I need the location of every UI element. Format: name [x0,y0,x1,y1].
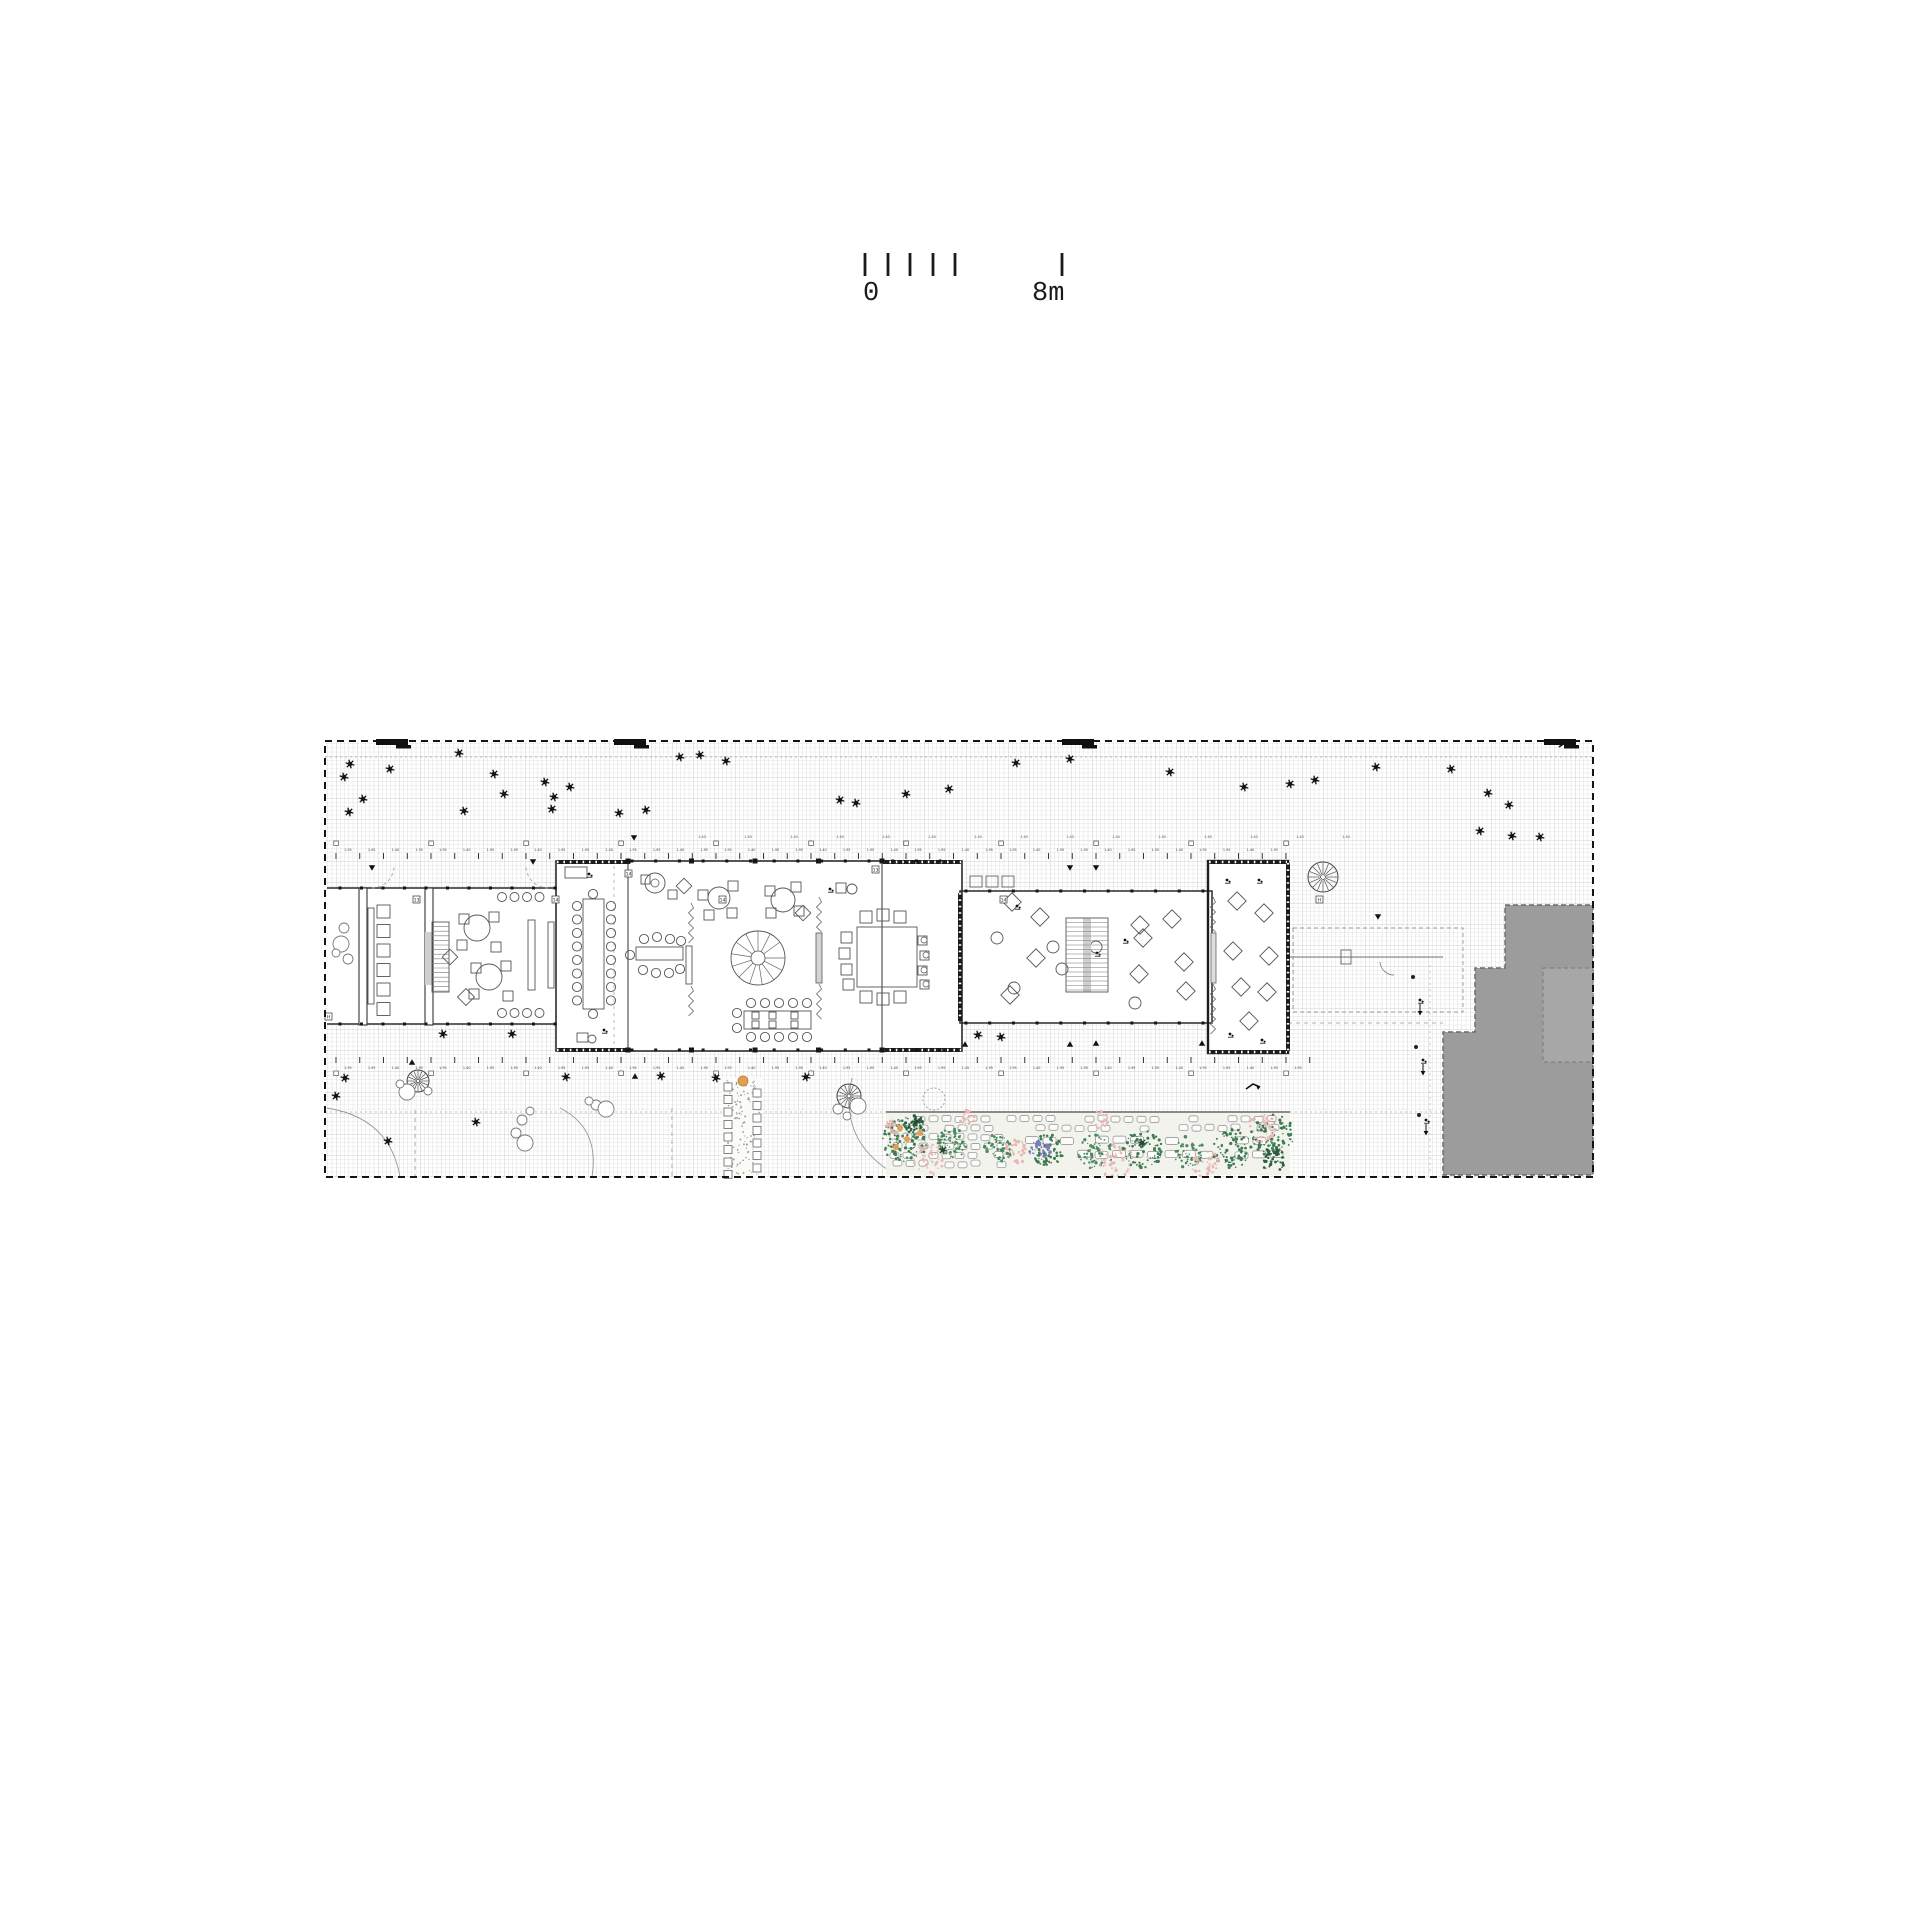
svg-text:1.40: 1.40 [890,848,898,852]
svg-text:1.40: 1.40 [962,1066,970,1070]
svg-text:1.40: 1.40 [534,1066,542,1070]
svg-text:1.40: 1.40 [463,848,471,852]
svg-text:1.95: 1.95 [653,848,661,852]
svg-text:1.95: 1.95 [700,848,708,852]
svg-text:1.95: 1.95 [368,848,376,852]
svg-text:1.40: 1.40 [1104,1066,1112,1070]
svg-text:1.95: 1.95 [558,848,566,852]
svg-text:1.40: 1.40 [962,848,970,852]
svg-text:1.95: 1.95 [938,1066,946,1070]
svg-text:1.95: 1.95 [1152,1066,1160,1070]
svg-text:1.95: 1.95 [415,848,423,852]
svg-text:H: H [1318,897,1321,903]
svg-text:1.40: 1.40 [1158,835,1166,839]
scale-end-label: 8m [1032,279,1064,309]
svg-text:1.40: 1.40 [1033,848,1041,852]
scale-zero-label: 0 [863,279,879,309]
svg-text:1.40: 1.40 [1112,835,1120,839]
svg-text:1.40: 1.40 [1247,848,1255,852]
svg-text:1.95: 1.95 [558,1066,566,1070]
svg-text:1.95: 1.95 [795,848,803,852]
svg-text:1.95: 1.95 [582,1066,590,1070]
svg-text:1.95: 1.95 [843,1066,851,1070]
svg-text:1.40: 1.40 [605,848,613,852]
svg-text:1.95: 1.95 [653,1066,661,1070]
svg-text:1.95: 1.95 [439,848,447,852]
scale-tick [864,253,867,276]
svg-text:1.95: 1.95 [985,848,993,852]
svg-text:1.95: 1.95 [1199,1066,1207,1070]
svg-text:1.95: 1.95 [1009,848,1017,852]
svg-text:1.95: 1.95 [1270,1066,1278,1070]
svg-text:1.95: 1.95 [1009,1066,1017,1070]
svg-text:1.40: 1.40 [974,835,982,839]
svg-text:1.95: 1.95 [914,1066,922,1070]
scale-tick [887,253,890,276]
svg-text:1.40: 1.40 [1342,835,1350,839]
svg-text:1.40: 1.40 [534,848,542,852]
svg-text:1.40: 1.40 [882,835,890,839]
svg-text:1.40: 1.40 [790,835,798,839]
svg-text:1.95: 1.95 [724,848,732,852]
svg-text:1.95: 1.95 [415,1066,423,1070]
svg-text:1.95: 1.95 [724,1066,732,1070]
svg-text:1.95: 1.95 [1294,1066,1302,1070]
svg-text:13: 13 [873,867,879,873]
svg-text:1.95: 1.95 [1057,848,1065,852]
stepping-path [722,1076,762,1179]
svg-text:14: 14 [720,897,726,903]
svg-text:1.40: 1.40 [463,1066,471,1070]
svg-text:1.40: 1.40 [819,1066,827,1070]
svg-text:1.95: 1.95 [1223,848,1231,852]
svg-text:1.40: 1.40 [1175,848,1183,852]
scale-tick-8m [1061,253,1064,276]
svg-text:1.95: 1.95 [795,1066,803,1070]
scale-tick [954,253,957,276]
svg-text:1.95: 1.95 [1199,848,1207,852]
svg-text:1.95: 1.95 [867,1066,875,1070]
svg-text:1.95: 1.95 [1223,1066,1231,1070]
svg-text:1.40: 1.40 [677,1066,685,1070]
svg-text:1.95: 1.95 [344,1066,352,1070]
svg-text:1.40: 1.40 [392,1066,400,1070]
svg-text:1.95: 1.95 [1152,848,1160,852]
svg-text:1.40: 1.40 [928,835,936,839]
svg-text:1.40: 1.40 [748,1066,756,1070]
svg-text:1.95: 1.95 [510,848,518,852]
scale-tick [909,253,912,276]
svg-text:1.40: 1.40 [698,835,706,839]
svg-text:1.40: 1.40 [1066,835,1074,839]
svg-text:14: 14 [626,871,632,877]
svg-text:1.40: 1.40 [890,1066,898,1070]
svg-text:1.40: 1.40 [819,848,827,852]
svg-text:1.95: 1.95 [914,848,922,852]
svg-text:1.40: 1.40 [836,835,844,839]
svg-text:1.95: 1.95 [867,848,875,852]
svg-text:1.95: 1.95 [344,848,352,852]
svg-text:14: 14 [553,897,559,903]
svg-text:1.40: 1.40 [1020,835,1028,839]
svg-text:1.95: 1.95 [985,1066,993,1070]
svg-text:1.40: 1.40 [748,848,756,852]
svg-text:1.95: 1.95 [510,1066,518,1070]
svg-text:1.40: 1.40 [744,835,752,839]
svg-text:1.40: 1.40 [1104,848,1112,852]
architectural-site-plan: 1.951.951.401.951.951.401.951.951.401.95… [0,0,1920,1920]
svg-text:1.95: 1.95 [772,1066,780,1070]
svg-text:1.40: 1.40 [1296,835,1304,839]
svg-text:1.95: 1.95 [700,1066,708,1070]
svg-text:1.40: 1.40 [1247,1066,1255,1070]
svg-text:1.95: 1.95 [487,848,495,852]
svg-text:1.95: 1.95 [938,848,946,852]
svg-text:1.40: 1.40 [1175,1066,1183,1070]
svg-text:1.95: 1.95 [1270,848,1278,852]
svg-text:1.95: 1.95 [582,848,590,852]
svg-text:1.95: 1.95 [1128,1066,1136,1070]
scale-bar: 08m [863,253,1064,309]
svg-text:13: 13 [414,897,420,903]
svg-text:1.95: 1.95 [368,1066,376,1070]
svg-text:H: H [327,1014,330,1020]
svg-text:1.95: 1.95 [1057,1066,1065,1070]
svg-text:14: 14 [1001,897,1007,903]
site-plan-drawing: 1.951.951.401.951.951.401.951.951.401.95… [0,0,1920,1920]
svg-text:1.95: 1.95 [439,1066,447,1070]
svg-text:1.40: 1.40 [1033,1066,1041,1070]
svg-text:1.95: 1.95 [843,848,851,852]
svg-text:1.95: 1.95 [1128,848,1136,852]
svg-text:1.95: 1.95 [1080,848,1088,852]
svg-text:1.40: 1.40 [677,848,685,852]
svg-text:1.40: 1.40 [392,848,400,852]
svg-text:1.95: 1.95 [772,848,780,852]
svg-text:1.95: 1.95 [1080,1066,1088,1070]
svg-text:1.95: 1.95 [629,848,637,852]
svg-text:1.95: 1.95 [487,1066,495,1070]
scale-tick [932,253,935,276]
svg-text:1.40: 1.40 [605,1066,613,1070]
svg-text:1.95: 1.95 [629,1066,637,1070]
svg-text:1.40: 1.40 [1204,835,1212,839]
svg-text:1.40: 1.40 [1250,835,1258,839]
